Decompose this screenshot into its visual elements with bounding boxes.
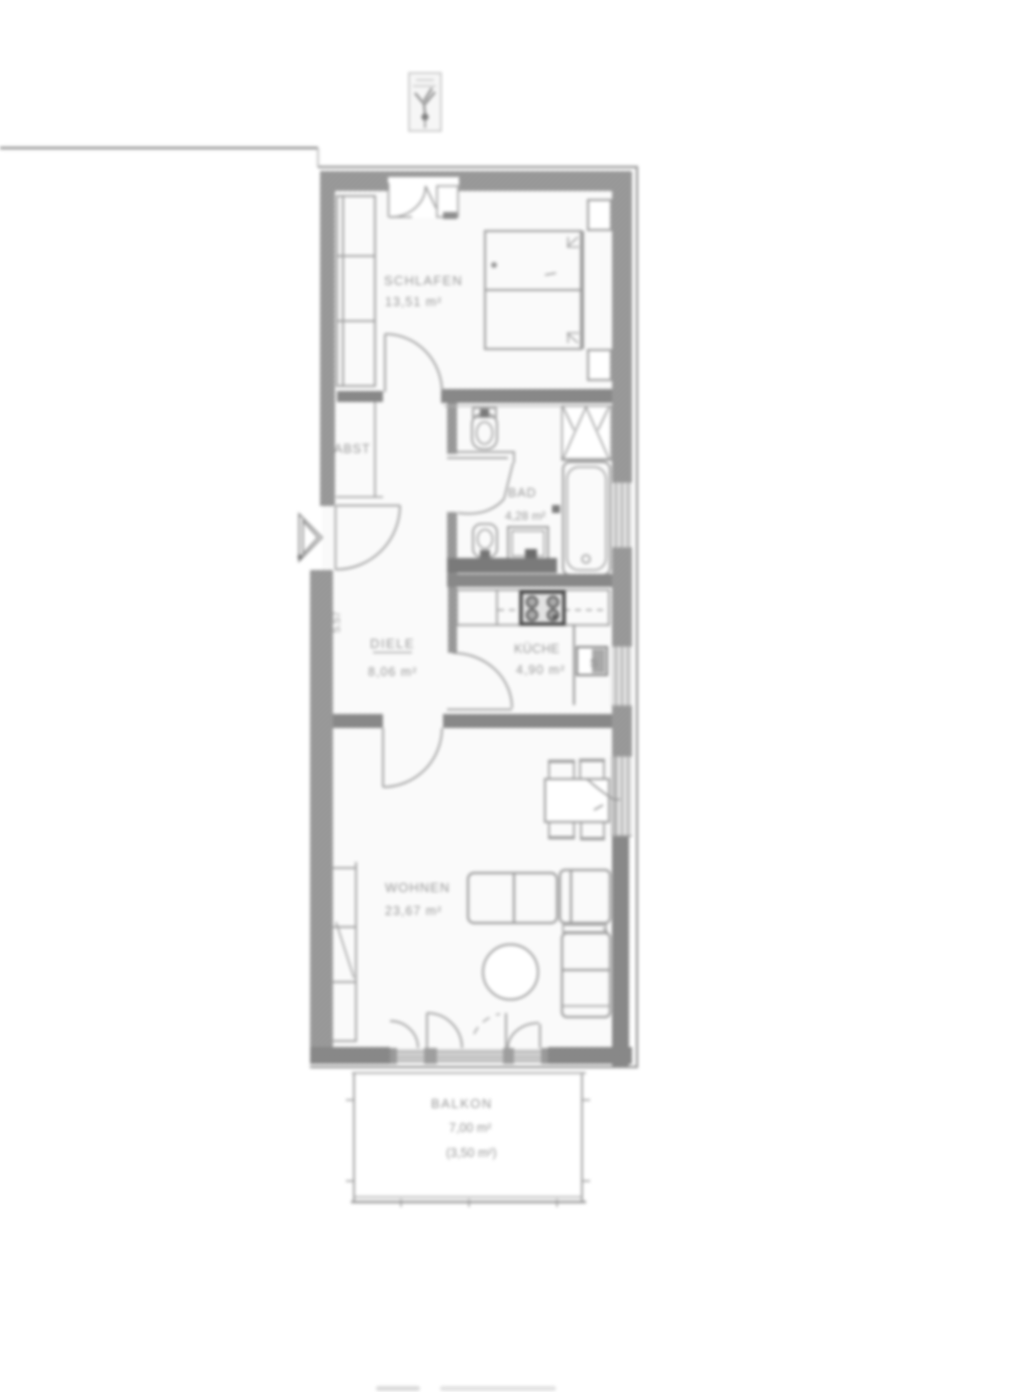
svg-text:(3,50 m²): (3,50 m²) <box>446 1146 497 1160</box>
svg-text:KÜCHE: KÜCHE <box>514 642 560 656</box>
svg-text:BAD: BAD <box>508 486 537 500</box>
svg-text:BALKON: BALKON <box>431 1096 493 1111</box>
svg-text:7,00 m²: 7,00 m² <box>449 1121 491 1135</box>
svg-text:DIELE: DIELE <box>370 636 415 651</box>
svg-text:8,06 m²: 8,06 m² <box>368 665 417 679</box>
svg-text:S: S <box>590 656 598 670</box>
svg-text:5.57: 5.57 <box>331 611 343 632</box>
svg-text:4,28 m²: 4,28 m² <box>505 509 546 523</box>
svg-text:23,67 m²: 23,67 m² <box>385 904 442 918</box>
svg-text:4,90 m²: 4,90 m² <box>516 663 565 677</box>
svg-text:SCHLAFEN: SCHLAFEN <box>384 273 463 288</box>
svg-text:WOHNEN: WOHNEN <box>385 880 450 895</box>
svg-text:ABST: ABST <box>334 442 371 456</box>
svg-text:13,51 m²: 13,51 m² <box>385 295 442 309</box>
